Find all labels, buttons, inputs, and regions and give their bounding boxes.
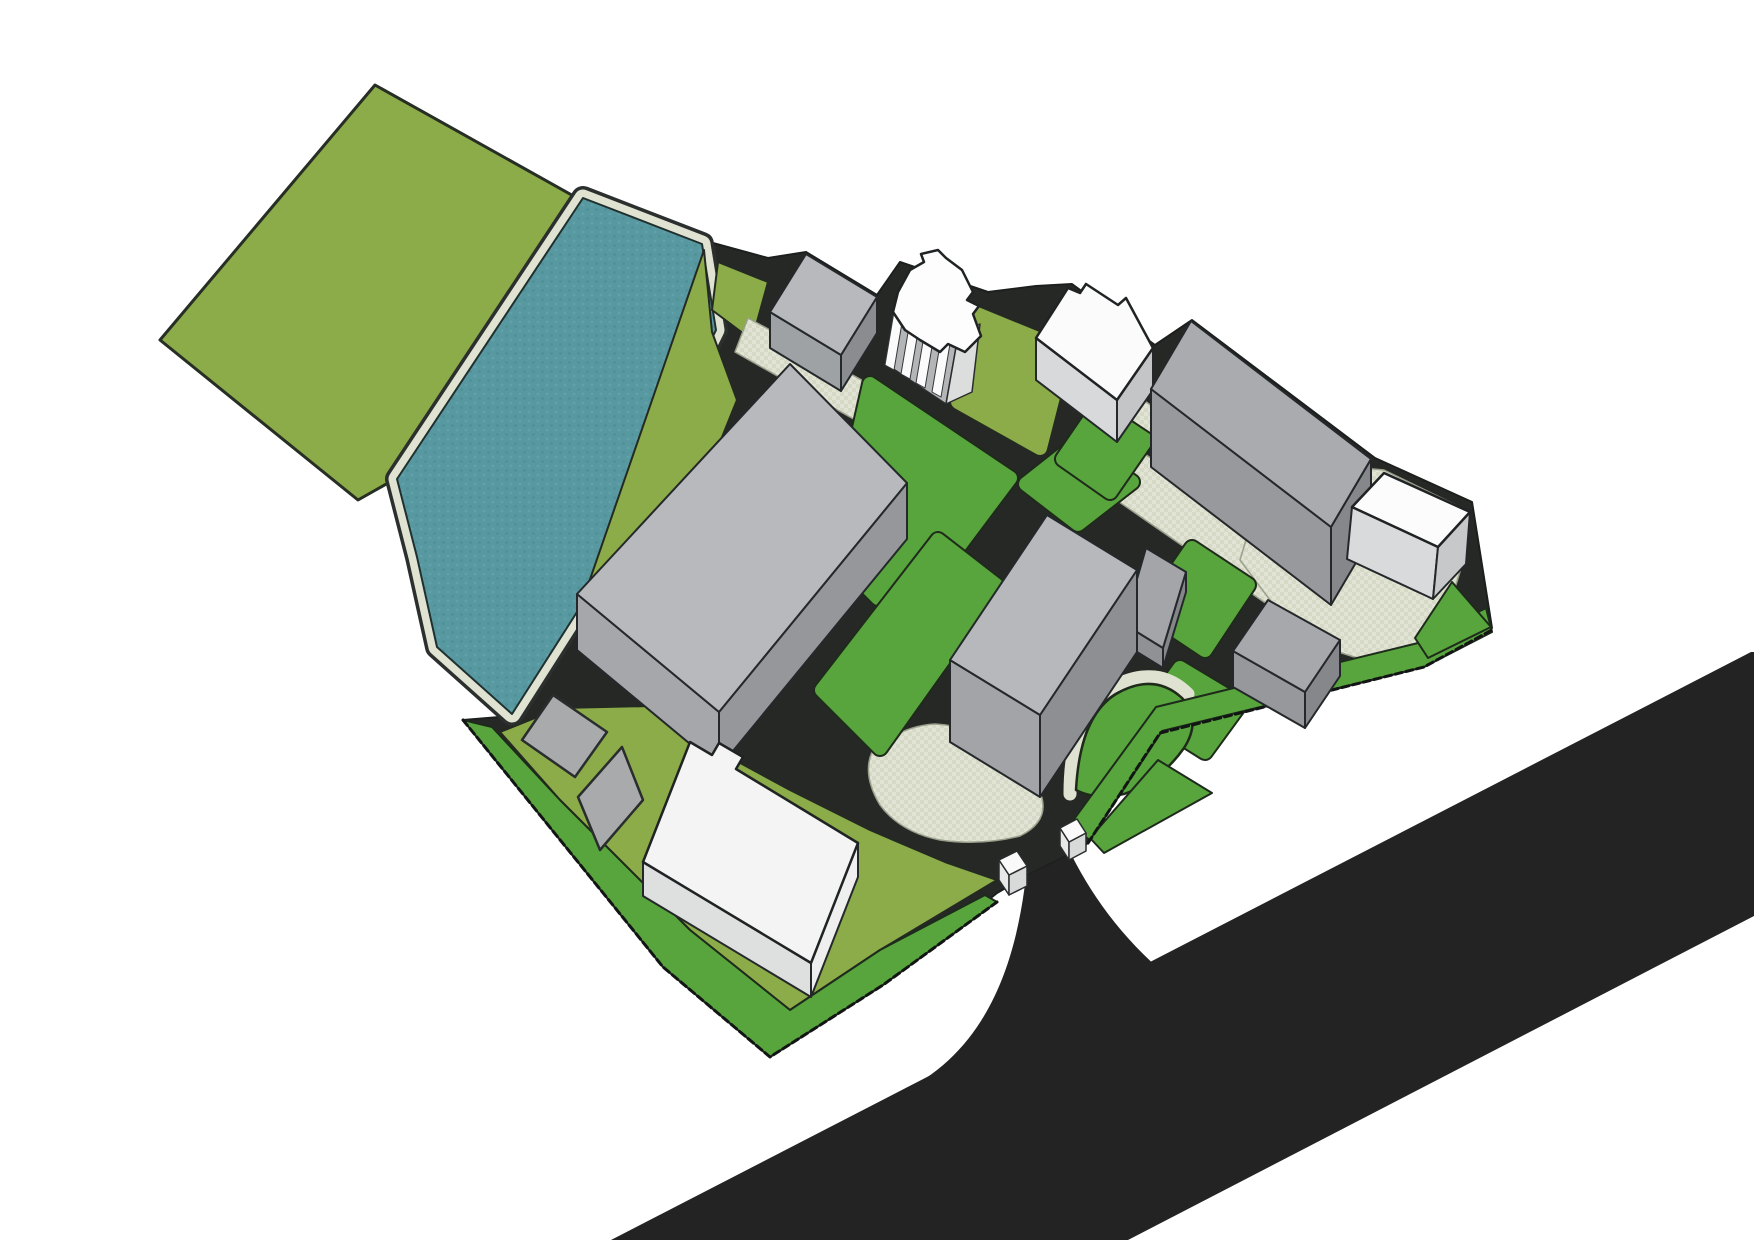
site-plan-canvas	[0, 0, 1754, 1240]
site-plan-layers	[160, 85, 1754, 1240]
site-plan-rendering	[0, 0, 1754, 1240]
